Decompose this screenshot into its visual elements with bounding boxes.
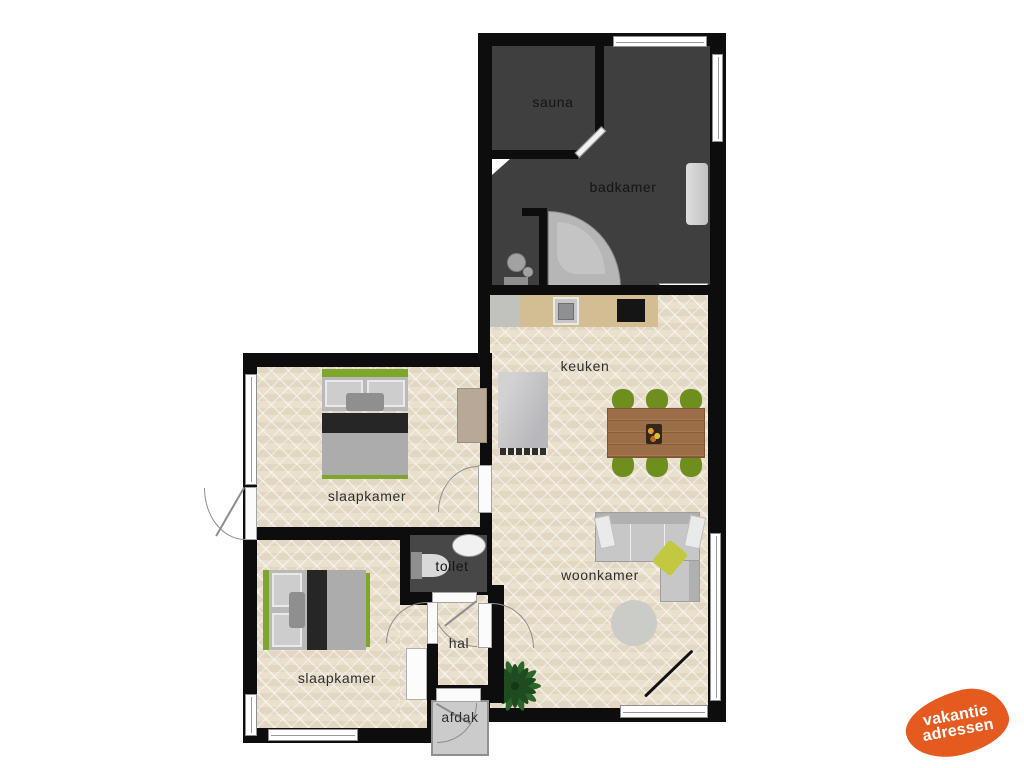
room-label-slaapkamer-bottom: slaapkamer (282, 670, 392, 686)
bed-cushion (289, 592, 305, 628)
wardrobe (457, 388, 487, 443)
door-swing-wedge (492, 159, 510, 175)
bed-footboard (366, 573, 370, 647)
livingroom-bottom-window (620, 705, 708, 718)
bedroom2-left-window (245, 694, 257, 736)
bathroom-radiator (686, 163, 708, 225)
kitchen-appliance (498, 372, 548, 448)
livingroom-right-window (710, 533, 721, 701)
bedroom2-bottom-window (268, 729, 358, 741)
room-label-keuken: keuken (540, 358, 630, 374)
bed-blanket-band (307, 570, 327, 650)
round-rug (611, 600, 657, 646)
kitchen-sink (553, 297, 579, 325)
bed-cushion (346, 393, 384, 411)
bathroom-sink-tap (523, 267, 533, 277)
bedroom1-exterior-door (245, 487, 257, 540)
kitchen-cabinet-gray (490, 295, 520, 327)
room-label-hal: hal (419, 635, 499, 651)
bathroom-right-window (712, 54, 723, 142)
front-door (436, 688, 481, 702)
closet (406, 648, 427, 700)
bed-double (322, 369, 408, 479)
room-label-woonkamer: woonkamer (545, 567, 655, 583)
fruit-bowl (646, 424, 662, 444)
cooktop (617, 299, 645, 322)
bed-blanket (322, 433, 408, 475)
kitchen-sink-basin (558, 303, 574, 320)
toilet-sink (452, 534, 486, 557)
bathroom-top-window (613, 36, 707, 47)
bed-headboard (322, 369, 408, 377)
sauna-wall-horizontal (492, 150, 578, 159)
bed-blanket (327, 570, 366, 650)
vakantieadressen-logo: vakantie adressen (899, 680, 1015, 766)
kitchen-radiator (500, 448, 548, 455)
bedroom1-door (478, 465, 492, 513)
bed-double (263, 570, 370, 650)
room-label-slaapkamer-top: slaapkamer (312, 488, 422, 504)
sauna-wall-vertical (595, 46, 604, 132)
room-label-badkamer: badkamer (568, 179, 678, 195)
room-label-sauna: sauna (510, 94, 596, 110)
shower-wall-stub-v (539, 208, 547, 287)
room-label-toilet: toilet (412, 558, 492, 574)
floorplan-canvas: sauna badkamer (0, 0, 1024, 768)
room-label-afdak: afdak (415, 709, 505, 725)
logo-text: vakantie adressen (919, 703, 995, 744)
bed-footboard (322, 475, 408, 479)
bedroom1-left-window (245, 374, 257, 485)
bed-blanket-band (322, 413, 408, 433)
